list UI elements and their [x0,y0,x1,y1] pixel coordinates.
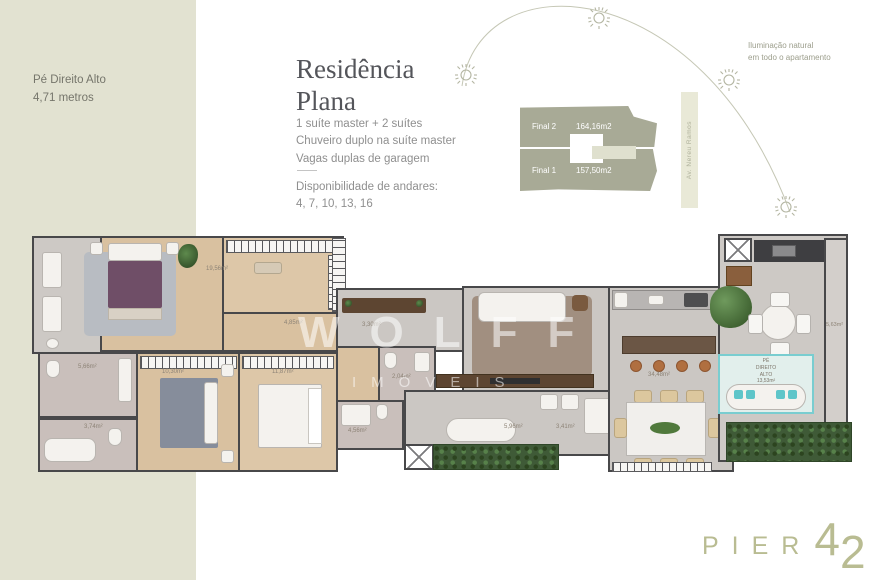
room-area-label: 3,30m² [362,322,381,328]
chair-icon [748,314,763,334]
lounge-label-line: ALTO [718,372,814,379]
grill-icon [772,245,796,257]
chair-icon [796,314,811,334]
closet-bench [254,262,282,274]
shaft-x-icon [724,238,752,262]
lounge-label: PÉ DIREITO ALTO 13,53m² [718,358,814,385]
pillow-icon [746,390,755,399]
fridge-icon [614,292,628,308]
room-area-label: 4,56m² [348,428,367,434]
floorplan: 19,56m² 4,85m² 5,66m² 3,74m² 10,30m² 11,… [0,0,870,580]
room-nook [336,346,380,402]
hedge-planter [433,444,559,470]
stool-icon [676,360,688,372]
wood-cabinet-icon [726,266,752,286]
lounger-icon [42,296,62,332]
room-area-label: 10,30m² [162,369,184,375]
kitchen-island [622,336,716,354]
room-area-label: 4,85m² [284,320,303,326]
pillow-icon [788,390,797,399]
console-table-icon [446,418,516,442]
toilet-icon [384,352,397,369]
room-area-label: 5,96m² [504,424,523,430]
logo-digit-4: 4 [814,516,840,562]
room-area-label: 19,56m² [206,266,228,272]
room-area-label: 34,48m² [648,372,670,378]
floorplan-marketing-page: Pé Direito Alto 4,71 metros Residência P… [0,0,870,580]
window-strip [612,462,712,472]
bathtub-icon [44,438,96,462]
chair-icon [614,418,627,438]
room-area-label: 3,41m² [556,424,575,430]
side-table-icon [46,338,59,349]
logo-digit-2: 2 [840,529,866,575]
cooktop-icon [684,293,708,307]
shaft-x-icon [404,444,434,470]
sink-icon [648,295,664,305]
nightstand-icon [90,242,103,255]
bed-foot-bench [108,308,162,320]
toilet-icon [376,404,388,420]
lounge-label-line: DIREITO [718,365,814,372]
hedge-planter [726,422,852,462]
shower-icon [341,404,371,426]
toilet-icon [46,360,60,378]
chair-icon [770,292,790,307]
sideboard-icon [342,298,426,313]
washer-icon [540,394,558,410]
bed-pillows [108,243,162,261]
room-area-label: 2,04m² [392,374,411,380]
room-area-label: 5,66m² [78,364,97,370]
stool-icon [653,360,665,372]
lounger-icon [42,252,62,288]
sofa-icon [478,292,566,322]
round-table-icon [760,304,796,340]
sink-icon [414,352,430,372]
bed-pillows [308,388,322,444]
stool-icon [630,360,642,372]
wardrobe-icon [226,240,340,253]
logo-word: PIER [702,532,812,561]
wardrobe-icon [242,356,334,369]
room-hall-closet [222,312,344,352]
toilet-icon [108,428,122,446]
pillow-icon [734,390,743,399]
lounge-label-line: PÉ [718,358,814,365]
room-area-label: 3,74m² [84,424,103,430]
pier42-logo: PIER 4 2 [702,516,866,562]
tree-icon [710,286,752,328]
bed-pillows [204,382,218,444]
nightstand-icon [221,364,234,377]
room-area-label: 11,87m² [272,369,294,375]
pillow-icon [776,390,785,399]
laundry-sink-icon [561,394,579,410]
nightstand-icon [221,450,234,463]
tv-icon [490,378,540,384]
nightstand-icon [166,242,179,255]
vanity-icon [118,358,132,402]
centerpiece-icon [650,422,680,434]
bed-master [108,261,162,308]
stool-icon [699,360,711,372]
side-table-icon [572,295,588,311]
room-area-label: 5,63m² [826,322,843,328]
